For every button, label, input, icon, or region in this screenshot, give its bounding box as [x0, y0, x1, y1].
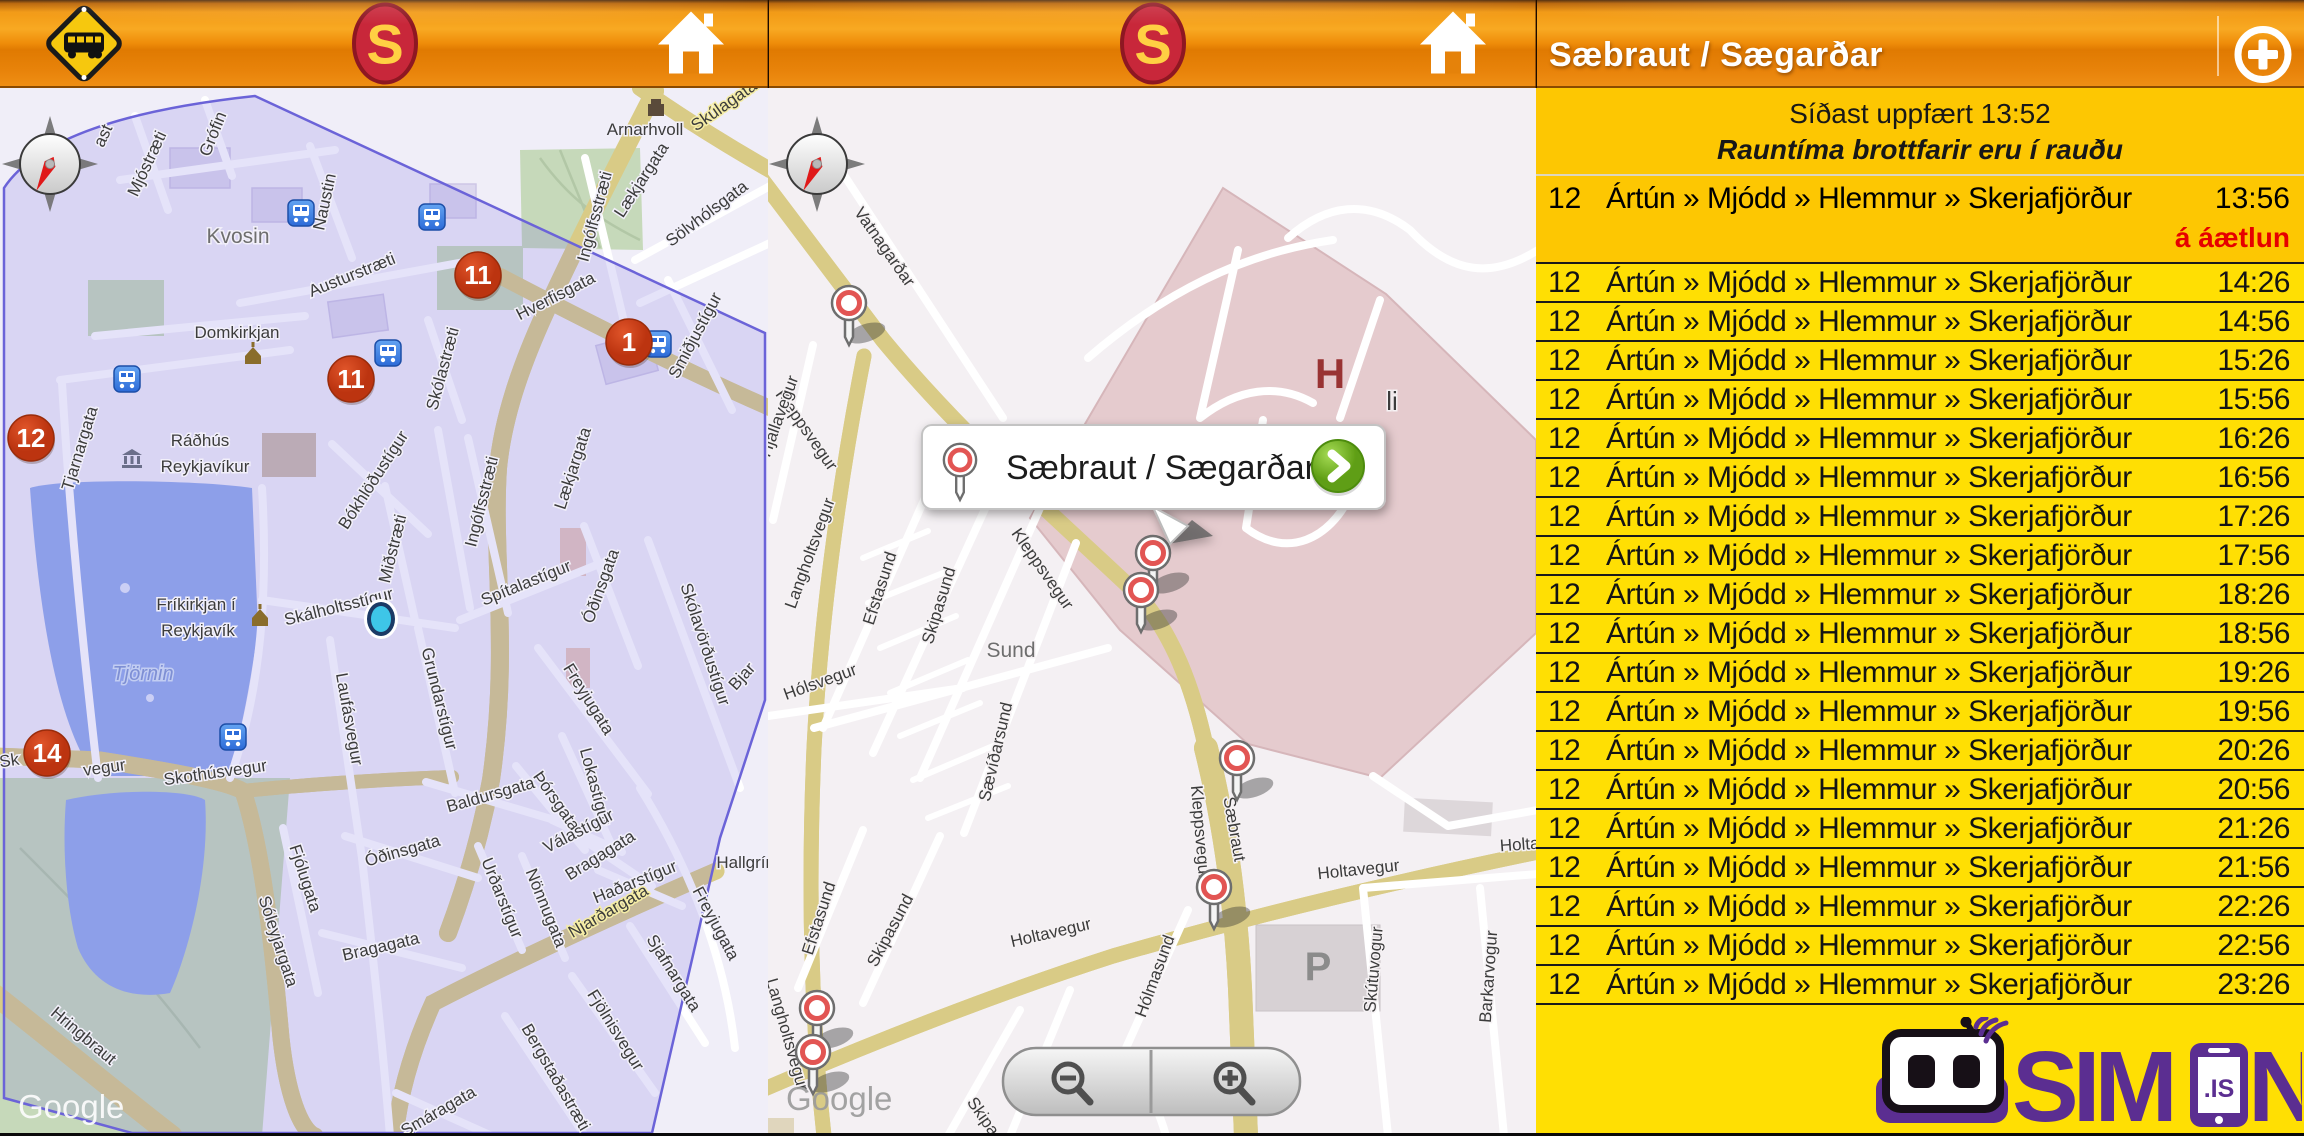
- route-destination: Ártún » Mjódd » Hlemmur » Skerjafjörður: [1606, 182, 2174, 216]
- street-label: Tjörnin: [112, 663, 173, 685]
- departure-row: 12Ártún » Mjódd » Hlemmur » Skerjafjörðu…: [1536, 808, 2304, 847]
- departure-row: 12Ártún » Mjódd » Hlemmur » Skerjafjörðu…: [1536, 301, 2304, 340]
- route-destination: Ártún » Mjódd » Hlemmur » Skerjafjörður: [1606, 851, 2174, 885]
- departure-row: 12Ártún » Mjódd » Hlemmur » Skerjafjörðu…: [1536, 379, 2304, 418]
- departure-time: 13:56: [2174, 182, 2304, 216]
- street-label: Reykjavík: [161, 621, 235, 640]
- departure-row: 12Ártún » Mjódd » Hlemmur » Skerjafjörðu…: [1536, 847, 2304, 886]
- route-destination: Ártún » Mjódd » Hlemmur » Skerjafjörður: [1606, 695, 2174, 729]
- departure-time: 15:56: [2174, 383, 2304, 417]
- current-location-dot: [364, 599, 398, 639]
- hospital-marker: H: [1315, 350, 1345, 397]
- schedule-panel[interactable]: Síðast uppfært 13:52 Rauntíma brottfarir…: [1536, 88, 2304, 1134]
- header-vertical-divider: [2217, 16, 2219, 76]
- svg-text:11: 11: [464, 260, 492, 290]
- route-destination: Ártún » Mjódd » Hlemmur » Skerjafjörður: [1606, 305, 2174, 339]
- departure-time: 17:56: [2174, 539, 2304, 573]
- cut-street-label: li: [1386, 386, 1398, 416]
- departure-time: 15:26: [2174, 344, 2304, 378]
- home-icon[interactable]: [655, 8, 727, 83]
- route-destination: Ártún » Mjódd » Hlemmur » Skerjafjörður: [1606, 461, 2174, 495]
- add-stop-button[interactable]: [2231, 23, 2295, 92]
- departure-row: 12Ártún » Mjódd » Hlemmur » Skerjafjörðu…: [1536, 964, 2304, 1005]
- departure-time: 21:26: [2174, 812, 2304, 846]
- route-number: 12: [1536, 383, 1606, 417]
- route-destination: Ártún » Mjódd » Hlemmur » Skerjafjörður: [1606, 500, 2174, 534]
- departure-time: 19:26: [2174, 656, 2304, 690]
- header-divider: [1535, 0, 1537, 88]
- home-icon[interactable]: [1417, 8, 1489, 83]
- svg-text:12: 12: [17, 423, 46, 453]
- simon-logo: SIM .IS N: [1872, 1017, 2302, 1134]
- departure-time: 17:26: [2174, 500, 2304, 534]
- street-label: Sund: [986, 639, 1035, 662]
- straeto-s-logo[interactable]: S: [350, 1, 420, 92]
- route-destination: Ártún » Mjódd » Hlemmur » Skerjafjörður: [1606, 578, 2174, 612]
- bus-stop-sign-icon[interactable]: [42, 2, 126, 91]
- departure-time: 14:26: [2174, 266, 2304, 300]
- svg-text:.IS: .IS: [2204, 1075, 2235, 1103]
- route-destination: Ártún » Mjódd » Hlemmur » Skerjafjörður: [1606, 617, 2174, 651]
- route-destination: Ártún » Mjódd » Hlemmur » Skerjafjörður: [1606, 734, 2174, 768]
- popup-go-button[interactable]: [1311, 440, 1365, 496]
- departure-time: 18:26: [2174, 578, 2304, 612]
- route-number: 12: [1536, 500, 1606, 534]
- svg-text:S: S: [366, 13, 403, 76]
- svg-text:SIM: SIM: [2012, 1031, 2172, 1129]
- route-number: 12: [1536, 344, 1606, 378]
- svg-text:1: 1: [622, 327, 636, 357]
- departure-time: 19:56: [2174, 695, 2304, 729]
- departure-row: 12Ártún » Mjódd » Hlemmur » Skerjafjörðu…: [1536, 574, 2304, 613]
- street-label: Holta: [1499, 834, 1536, 856]
- departure-row: 12Ártún » Mjódd » Hlemmur » Skerjafjörðu…: [1536, 613, 2304, 652]
- left-panel-header: S: [0, 0, 768, 88]
- header-divider: [767, 0, 769, 88]
- route-number: 12: [1536, 461, 1606, 495]
- page-title: Sæbraut / Sægarðar: [1549, 36, 1883, 75]
- street-label: Domkirkjan: [194, 323, 279, 342]
- departure-row: 12Ártún » Mjódd » Hlemmur » Skerjafjörðu…: [1536, 652, 2304, 691]
- parking-marker: P: [1305, 945, 1332, 989]
- departure-time: 18:56: [2174, 617, 2304, 651]
- route-number: 12: [1536, 305, 1606, 339]
- route-number: 12: [1536, 617, 1606, 651]
- route-number: 12: [1536, 929, 1606, 963]
- departure-row: 12Ártún » Mjódd » Hlemmur » Skerjafjörðu…: [1536, 691, 2304, 730]
- departure-time: 22:56: [2174, 929, 2304, 963]
- google-logo: Google: [786, 1080, 892, 1117]
- schedule-header-block: Síðast uppfært 13:52 Rauntíma brottfarir…: [1536, 88, 2304, 262]
- street-label: Fríkirkjan í: [156, 595, 236, 614]
- departure-time: 14:56: [2174, 305, 2304, 339]
- last-updated-text: Síðast uppfært 13:52: [1536, 88, 2304, 130]
- route-number: 12: [1536, 656, 1606, 690]
- route-destination: Ártún » Mjódd » Hlemmur » Skerjafjörður: [1606, 812, 2174, 846]
- street-label: Sk: [0, 750, 21, 772]
- route-destination: Ártún » Mjódd » Hlemmur » Skerjafjörður: [1606, 929, 2174, 963]
- route-destination: Ártún » Mjódd » Hlemmur » Skerjafjörður: [1606, 383, 2174, 417]
- left-map[interactable]: astMjóstrætiGrófinNaustinKvosinAusturstr…: [0, 88, 768, 1136]
- route-number: 12: [1536, 890, 1606, 924]
- svg-text:14: 14: [33, 738, 62, 768]
- route-number: 12: [1536, 968, 1606, 1002]
- street-label: Arnarhvoll: [607, 120, 684, 139]
- bus-stop-icon: [419, 204, 445, 230]
- route-number: 12: [1536, 578, 1606, 612]
- map-zoom-control: [1003, 1048, 1300, 1115]
- route-destination: Ártún » Mjódd » Hlemmur » Skerjafjörður: [1606, 539, 2174, 573]
- right-panel-header: Sæbraut / Sægarðar: [1537, 0, 2304, 88]
- svg-text:N: N: [2248, 1031, 2302, 1129]
- route-number: 12: [1536, 539, 1606, 573]
- route-number: 12: [1536, 851, 1606, 885]
- departure-time: 16:56: [2174, 461, 2304, 495]
- bus-stop-icon: [375, 340, 401, 366]
- departure-time: 20:56: [2174, 773, 2304, 807]
- departure-row: 12Ártún » Mjódd » Hlemmur » Skerjafjörðu…: [1536, 262, 2304, 301]
- street-label: Ráðhús: [171, 431, 230, 450]
- middle-map[interactable]: VatnagarðarKleppsvegurKleppsvegurLanghol…: [768, 88, 1536, 1136]
- departure-row: 12Ártún » Mjódd » Hlemmur » Skerjafjörðu…: [1536, 769, 2304, 808]
- route-number: 12: [1536, 422, 1606, 456]
- route-destination: Ártún » Mjódd » Hlemmur » Skerjafjörður: [1606, 422, 2174, 456]
- departure-time: 21:56: [2174, 851, 2304, 885]
- departure-row: 12Ártún » Mjódd » Hlemmur » Skerjafjörðu…: [1536, 418, 2304, 457]
- departure-row: 12Ártún » Mjódd » Hlemmur » Skerjafjörðu…: [1536, 457, 2304, 496]
- realtime-note: Rauntíma brottfarir eru í rauðu: [1536, 130, 2304, 176]
- departure-row: 12Ártún » Mjódd » Hlemmur » Skerjafjörðu…: [1536, 496, 2304, 535]
- departure-row: 12Ártún » Mjódd » Hlemmur » Skerjafjörðu…: [1536, 535, 2304, 574]
- street-label: Hallgrím: [716, 853, 768, 872]
- route-number: 12: [1536, 695, 1606, 729]
- route-number: 12: [1536, 734, 1606, 768]
- svg-text:11: 11: [337, 364, 365, 394]
- route-number: 12: [1536, 812, 1606, 846]
- departure-time: 23:26: [2174, 968, 2304, 1002]
- svg-text:S: S: [1134, 13, 1171, 76]
- straeto-s-logo[interactable]: S: [1118, 1, 1188, 92]
- departure-row: 12Ártún » Mjódd » Hlemmur » Skerjafjörðu…: [1536, 925, 2304, 964]
- departure-row: 12Ártún » Mjódd » Hlemmur » Skerjafjörðu…: [1536, 730, 2304, 769]
- route-destination: Ártún » Mjódd » Hlemmur » Skerjafjörður: [1606, 890, 2174, 924]
- route-number: 12: [1536, 182, 1606, 216]
- route-number: 12: [1536, 266, 1606, 300]
- route-destination: Ártún » Mjódd » Hlemmur » Skerjafjörður: [1606, 344, 2174, 378]
- popup-stop-name: Sæbraut / Sægarðar: [1006, 449, 1316, 487]
- departure-row: 12Ártún » Mjódd » Hlemmur » Skerjafjörðu…: [1536, 340, 2304, 379]
- middle-panel-header: S: [769, 0, 1536, 88]
- realtime-status: á áætlun: [1536, 222, 2304, 262]
- google-logo: Google: [18, 1088, 124, 1125]
- route-number: 12: [1536, 773, 1606, 807]
- departure-row: 12Ártún » Mjódd » Hlemmur » Skerjafjörðu…: [1536, 886, 2304, 925]
- street-label: Kvosin: [206, 225, 269, 248]
- route-destination: Ártún » Mjódd » Hlemmur » Skerjafjörður: [1606, 656, 2174, 690]
- bus-stop-icon: [288, 200, 314, 226]
- bus-stop-icon: [220, 724, 246, 750]
- departure-row-realtime: 12 Ártún » Mjódd » Hlemmur » Skerjafjörð…: [1536, 176, 2304, 222]
- departure-time: 20:26: [2174, 734, 2304, 768]
- route-destination: Ártún » Mjódd » Hlemmur » Skerjafjörður: [1606, 968, 2174, 1002]
- street-label: Reykjavíkur: [161, 457, 250, 476]
- departure-time: 22:26: [2174, 890, 2304, 924]
- departure-time: 16:26: [2174, 422, 2304, 456]
- route-destination: Ártún » Mjódd » Hlemmur » Skerjafjörður: [1606, 773, 2174, 807]
- bus-stop-icon: [114, 366, 140, 392]
- app-screen: S S Sæbraut / Sægarða: [0, 0, 2304, 1136]
- route-destination: Ártún » Mjódd » Hlemmur » Skerjafjörður: [1606, 266, 2174, 300]
- departure-list: 12Ártún » Mjódd » Hlemmur » Skerjafjörðu…: [1536, 262, 2304, 1005]
